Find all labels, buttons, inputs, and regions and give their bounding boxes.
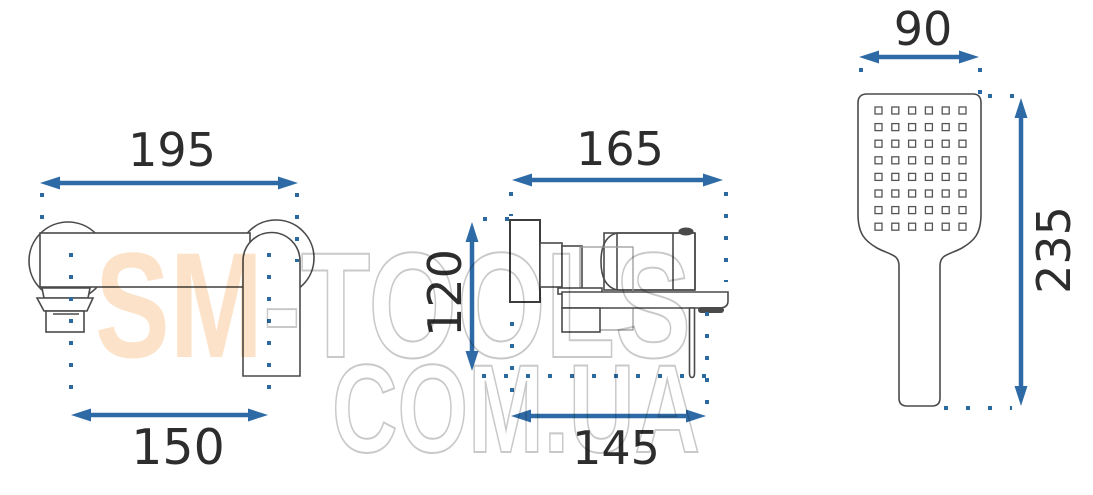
nozzle-square [925, 190, 932, 197]
nozzle-square [959, 140, 966, 147]
nozzle-square [942, 124, 949, 131]
hand-shower-drawing [858, 94, 981, 406]
nozzle-square [892, 207, 899, 214]
technical-drawing-page: 195 150 165 120 145 [0, 0, 1093, 495]
arrowhead-150-left [71, 409, 91, 422]
nozzle-square [925, 207, 932, 214]
nozzle-square [925, 124, 932, 131]
nozzle-square [875, 124, 882, 131]
nozzle-square [892, 157, 899, 164]
nozzle-square [875, 107, 882, 114]
dimension-label-235: 235 [1027, 206, 1081, 294]
nozzle-square [925, 173, 932, 180]
nozzle-square [909, 107, 916, 114]
arrowhead-235-top [1015, 98, 1028, 118]
nozzle-square [875, 223, 882, 230]
spout-collar-mid [37, 298, 93, 311]
nozzle-square [942, 223, 949, 230]
watermark-brand-filled-part: SM [95, 221, 263, 389]
nozzle-square [942, 207, 949, 214]
nozzle-square [925, 140, 932, 147]
nozzle-square [959, 124, 966, 131]
nozzle-square [959, 107, 966, 114]
nozzle-square [925, 107, 932, 114]
dimension-label-150: 150 [131, 419, 225, 476]
dimension-label-165: 165 [576, 122, 664, 176]
nozzle-square [875, 190, 882, 197]
nozzle-square [959, 223, 966, 230]
lever-grip [698, 307, 724, 313]
arrowhead-235-bottom [1015, 386, 1028, 406]
nozzle-square [942, 107, 949, 114]
nozzle-square [909, 223, 916, 230]
nozzle-square [925, 157, 932, 164]
nozzle-square [909, 207, 916, 214]
dimension-label-195: 195 [128, 123, 216, 177]
arrowhead-165-left [512, 174, 532, 187]
nozzle-square [909, 190, 916, 197]
nozzle-square [909, 157, 916, 164]
arrowhead-90-right [959, 51, 979, 64]
nozzle-square [925, 223, 932, 230]
nozzle-square [892, 223, 899, 230]
arrowhead-90-left [859, 51, 879, 64]
nozzle-square [909, 173, 916, 180]
nozzle-square [909, 124, 916, 131]
nozzle-square [942, 190, 949, 197]
nozzle-square [909, 140, 916, 147]
arrowhead-165-right [703, 174, 723, 187]
nozzle-square [875, 207, 882, 214]
nozzle-square [875, 173, 882, 180]
nozzle-square [875, 140, 882, 147]
dimension-label-90: 90 [894, 2, 953, 56]
mixer-dimension-diagram: 195 150 165 120 145 [0, 0, 1093, 495]
arrowhead-195-right [278, 177, 298, 190]
spout-collar-top [42, 288, 90, 298]
nozzle-square [959, 207, 966, 214]
nozzle-square [942, 157, 949, 164]
nozzle-square [959, 190, 966, 197]
watermark-domain-text: COM.UA [332, 340, 700, 479]
nozzle-square [875, 157, 882, 164]
nozzle-square [892, 107, 899, 114]
nozzle-square [942, 173, 949, 180]
nozzle-square [892, 140, 899, 147]
arrowhead-195-left [40, 177, 60, 190]
nozzle-square [959, 173, 966, 180]
arrowhead-150-right [248, 409, 268, 422]
nozzle-square [892, 190, 899, 197]
nozzle-square [892, 124, 899, 131]
nozzle-square [942, 140, 949, 147]
nozzle-square [892, 173, 899, 180]
nozzle-square [959, 157, 966, 164]
